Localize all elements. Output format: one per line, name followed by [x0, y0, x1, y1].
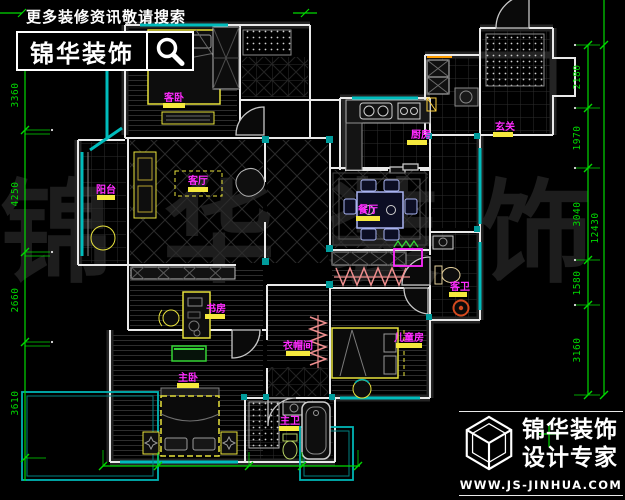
dim-right-total: 12430 [590, 212, 601, 243]
footer-brand: 锦华装饰 [522, 417, 618, 445]
dim-right-3: 3040 [572, 202, 583, 227]
room-label-bedroom-child: 儿童房 [393, 331, 424, 344]
footer-tagline: 设计专家 [522, 445, 618, 473]
entry-closet-mat [243, 30, 291, 55]
dim-right-5: 3160 [572, 338, 583, 363]
room-label-master-bath: 主卫 [280, 414, 300, 427]
room-label-dining: 餐厅 [357, 203, 378, 216]
search-banner: 更多装修资讯敬请搜索 锦华装饰 [16, 6, 194, 71]
footer-bottom-rule [459, 495, 623, 496]
room-label-balcony: 阳台 [96, 183, 116, 196]
search-icon [146, 33, 192, 69]
cube-logo-icon [459, 414, 519, 476]
room-label-kitchen: 厨房 [411, 128, 431, 141]
dim-left-3: 2660 [10, 288, 21, 313]
banner-brand: 锦华装饰 [18, 34, 146, 69]
dim-right-1: 2180 [572, 65, 583, 90]
room-label-living: 客厅 [187, 174, 208, 187]
room-label-study: 书房 [206, 302, 226, 315]
entrance-mat [486, 34, 544, 86]
banner-brand-box: 锦华装饰 [16, 31, 194, 71]
room-label-entrance: 玄关 [495, 120, 515, 133]
room-label-closet: 衣帽间 [283, 339, 313, 352]
room-label-master: 主卧 [178, 371, 198, 384]
banner-tagline: 更多装修资讯敬请搜索 [26, 6, 194, 27]
dim-left-1: 3360 [10, 83, 21, 108]
dim-right-4: 1580 [572, 271, 583, 296]
footer-website: WWW.JS-JINHUA.COM [459, 478, 623, 492]
dim-left-4: 3610 [10, 391, 21, 416]
dim-right-2: 1970 [572, 126, 583, 151]
room-label-bedroom-top: 客卧 [163, 91, 184, 104]
brand-footer: 锦华装饰 设计专家 WWW.JS-JINHUA.COM [459, 411, 623, 496]
room-label-bath-right: 客卫 [449, 280, 470, 293]
dim-left-2: 4250 [10, 182, 21, 207]
